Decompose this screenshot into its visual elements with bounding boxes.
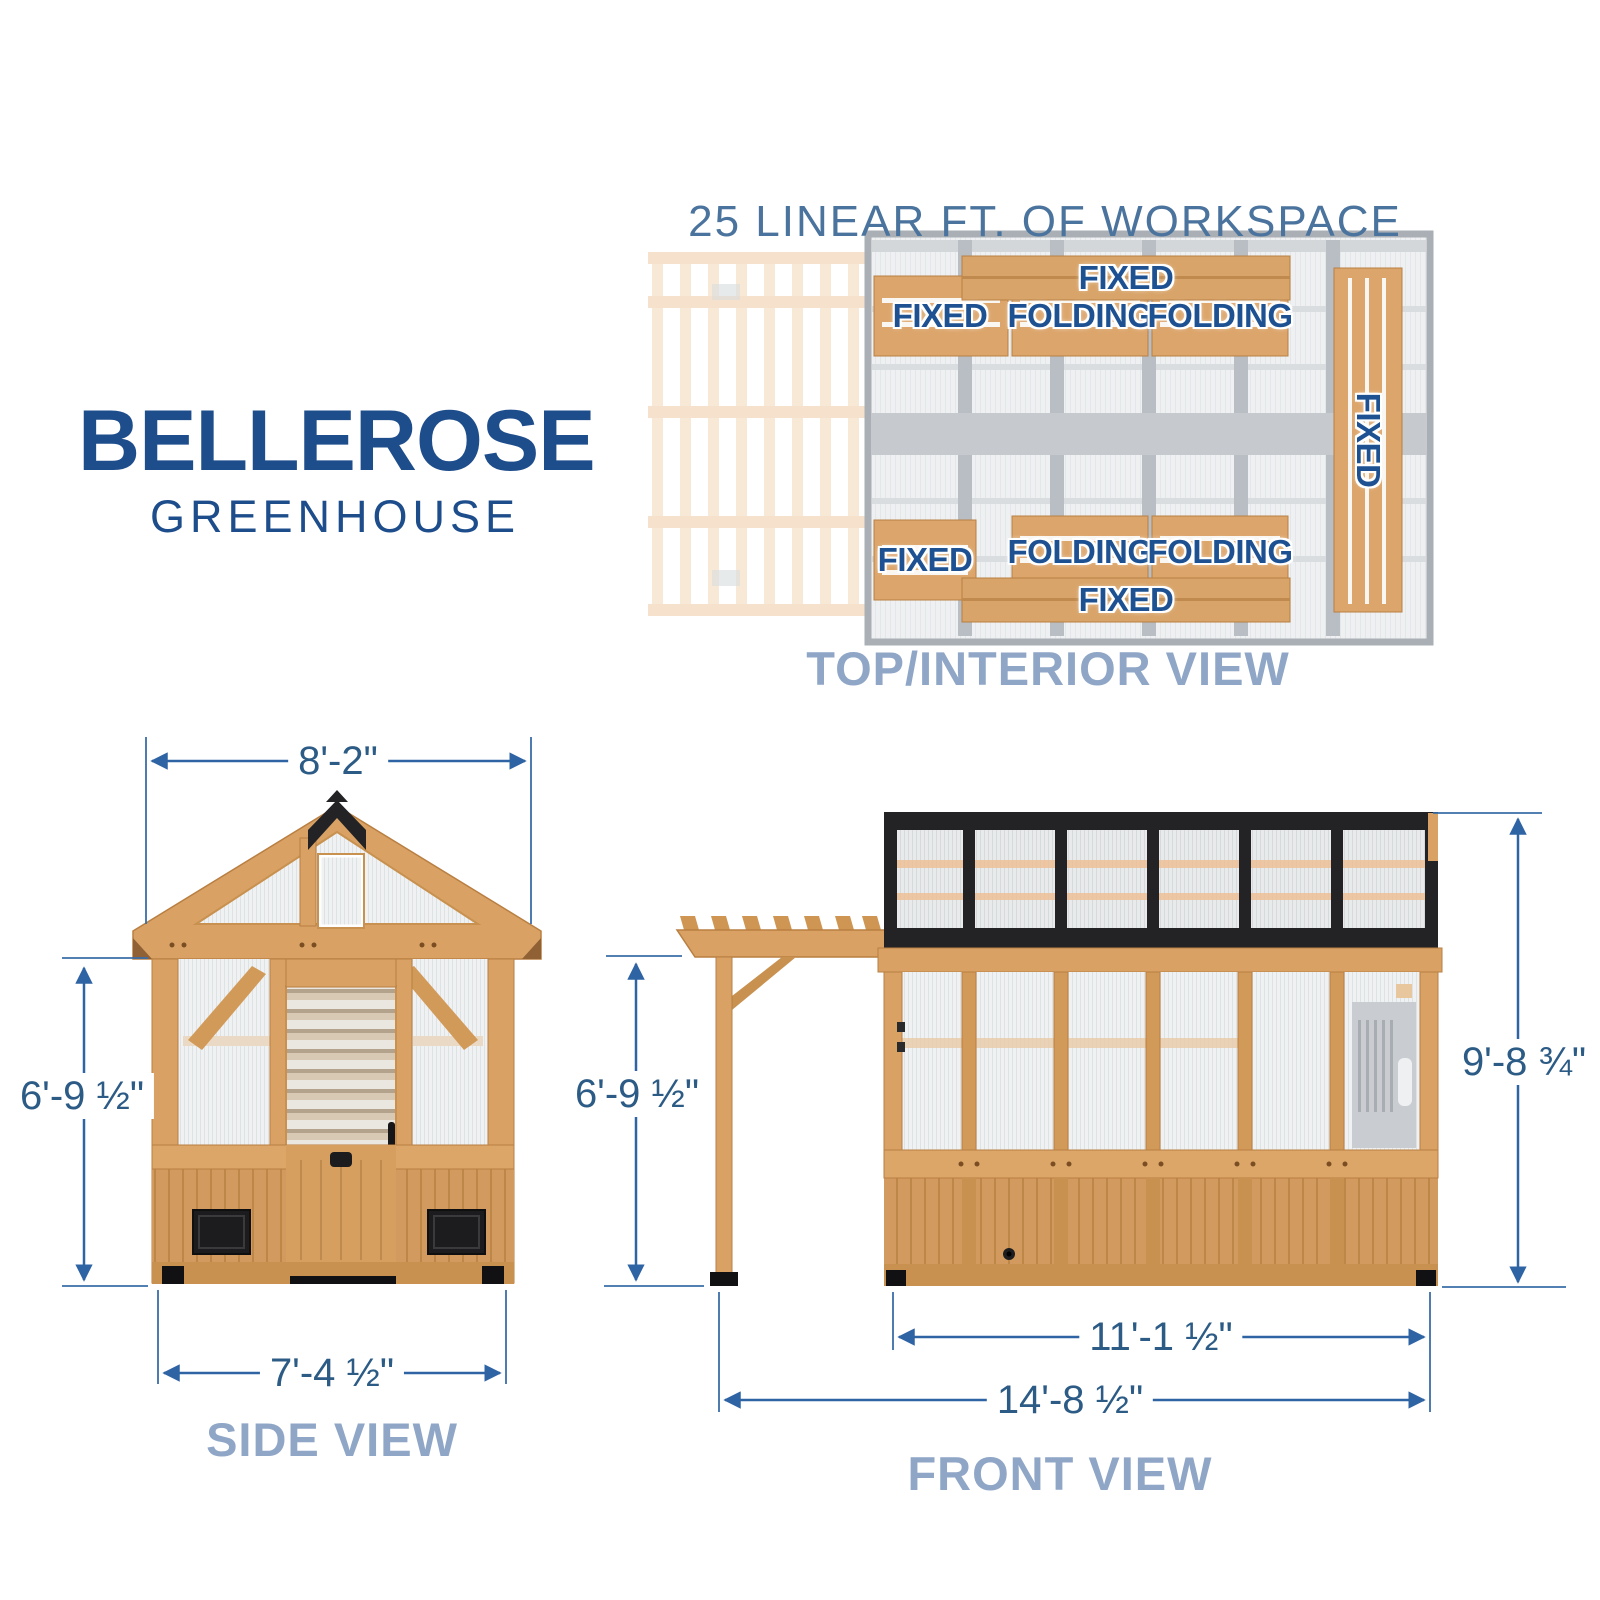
side-door-latch	[330, 1152, 352, 1167]
dim-front-total-height: 9'-8 ¾"	[1452, 1039, 1596, 1085]
side-view-illustration	[133, 790, 541, 1284]
front-fascia-beam	[878, 948, 1442, 972]
diagram-canvas: BELLEROSE GREENHOUSE 25 LINEAR FT. OF WO…	[0, 0, 1600, 1600]
brand-block: BELLEROSE GREENHOUSE	[78, 398, 592, 539]
shelf-label-front-right: FOLDING	[1148, 533, 1293, 571]
front-pergola-post	[716, 957, 732, 1284]
dim-front-greenhouse-width: 11'-1 ½"	[1079, 1314, 1242, 1360]
dim-side-roof-width: 8'-2"	[288, 738, 388, 784]
front-view-illustration	[677, 812, 1442, 1286]
dim-front-pergola-height: 6'-9 ½"	[565, 1071, 709, 1117]
shelf-label-front-middle: FOLDING	[1008, 533, 1153, 571]
brand-name: BELLEROSE	[78, 398, 592, 484]
shelf-label-back-middle: FOLDING	[1008, 297, 1153, 335]
dim-front-total-width: 14'-8 ½"	[987, 1377, 1153, 1423]
shelf-label-back-right: FOLDING	[1148, 297, 1293, 335]
shelf-label-back-left: FIXED	[893, 297, 988, 335]
front-base	[884, 1150, 1438, 1286]
top-view-pergola-faded	[648, 252, 870, 616]
side-door	[286, 959, 396, 1162]
shelf-label-back-plank: FIXED	[1079, 259, 1174, 297]
side-view-caption: SIDE VIEW	[132, 1416, 532, 1463]
front-view-caption: FRONT VIEW	[860, 1450, 1260, 1497]
dim-side-wall-height: 6'-9 ½"	[10, 1073, 154, 1119]
shelf-label-right-wall: FIXED	[1349, 393, 1387, 488]
front-roof	[884, 812, 1438, 948]
shelf-label-front-left: FIXED	[878, 541, 973, 579]
top-view-illustration	[648, 234, 1430, 642]
front-wall	[884, 972, 1438, 1150]
side-base	[152, 1145, 514, 1284]
front-pergola-beam	[677, 930, 886, 957]
top-view-caption: TOP/INTERIOR VIEW	[798, 645, 1298, 692]
workspace-heading: 25 LINEAR FT. OF WORKSPACE	[680, 198, 1410, 246]
dim-side-base-width: 7'-4 ½"	[260, 1350, 404, 1396]
brand-subtitle: GREENHOUSE	[78, 494, 592, 539]
shelf-label-front-plank: FIXED	[1079, 581, 1174, 619]
